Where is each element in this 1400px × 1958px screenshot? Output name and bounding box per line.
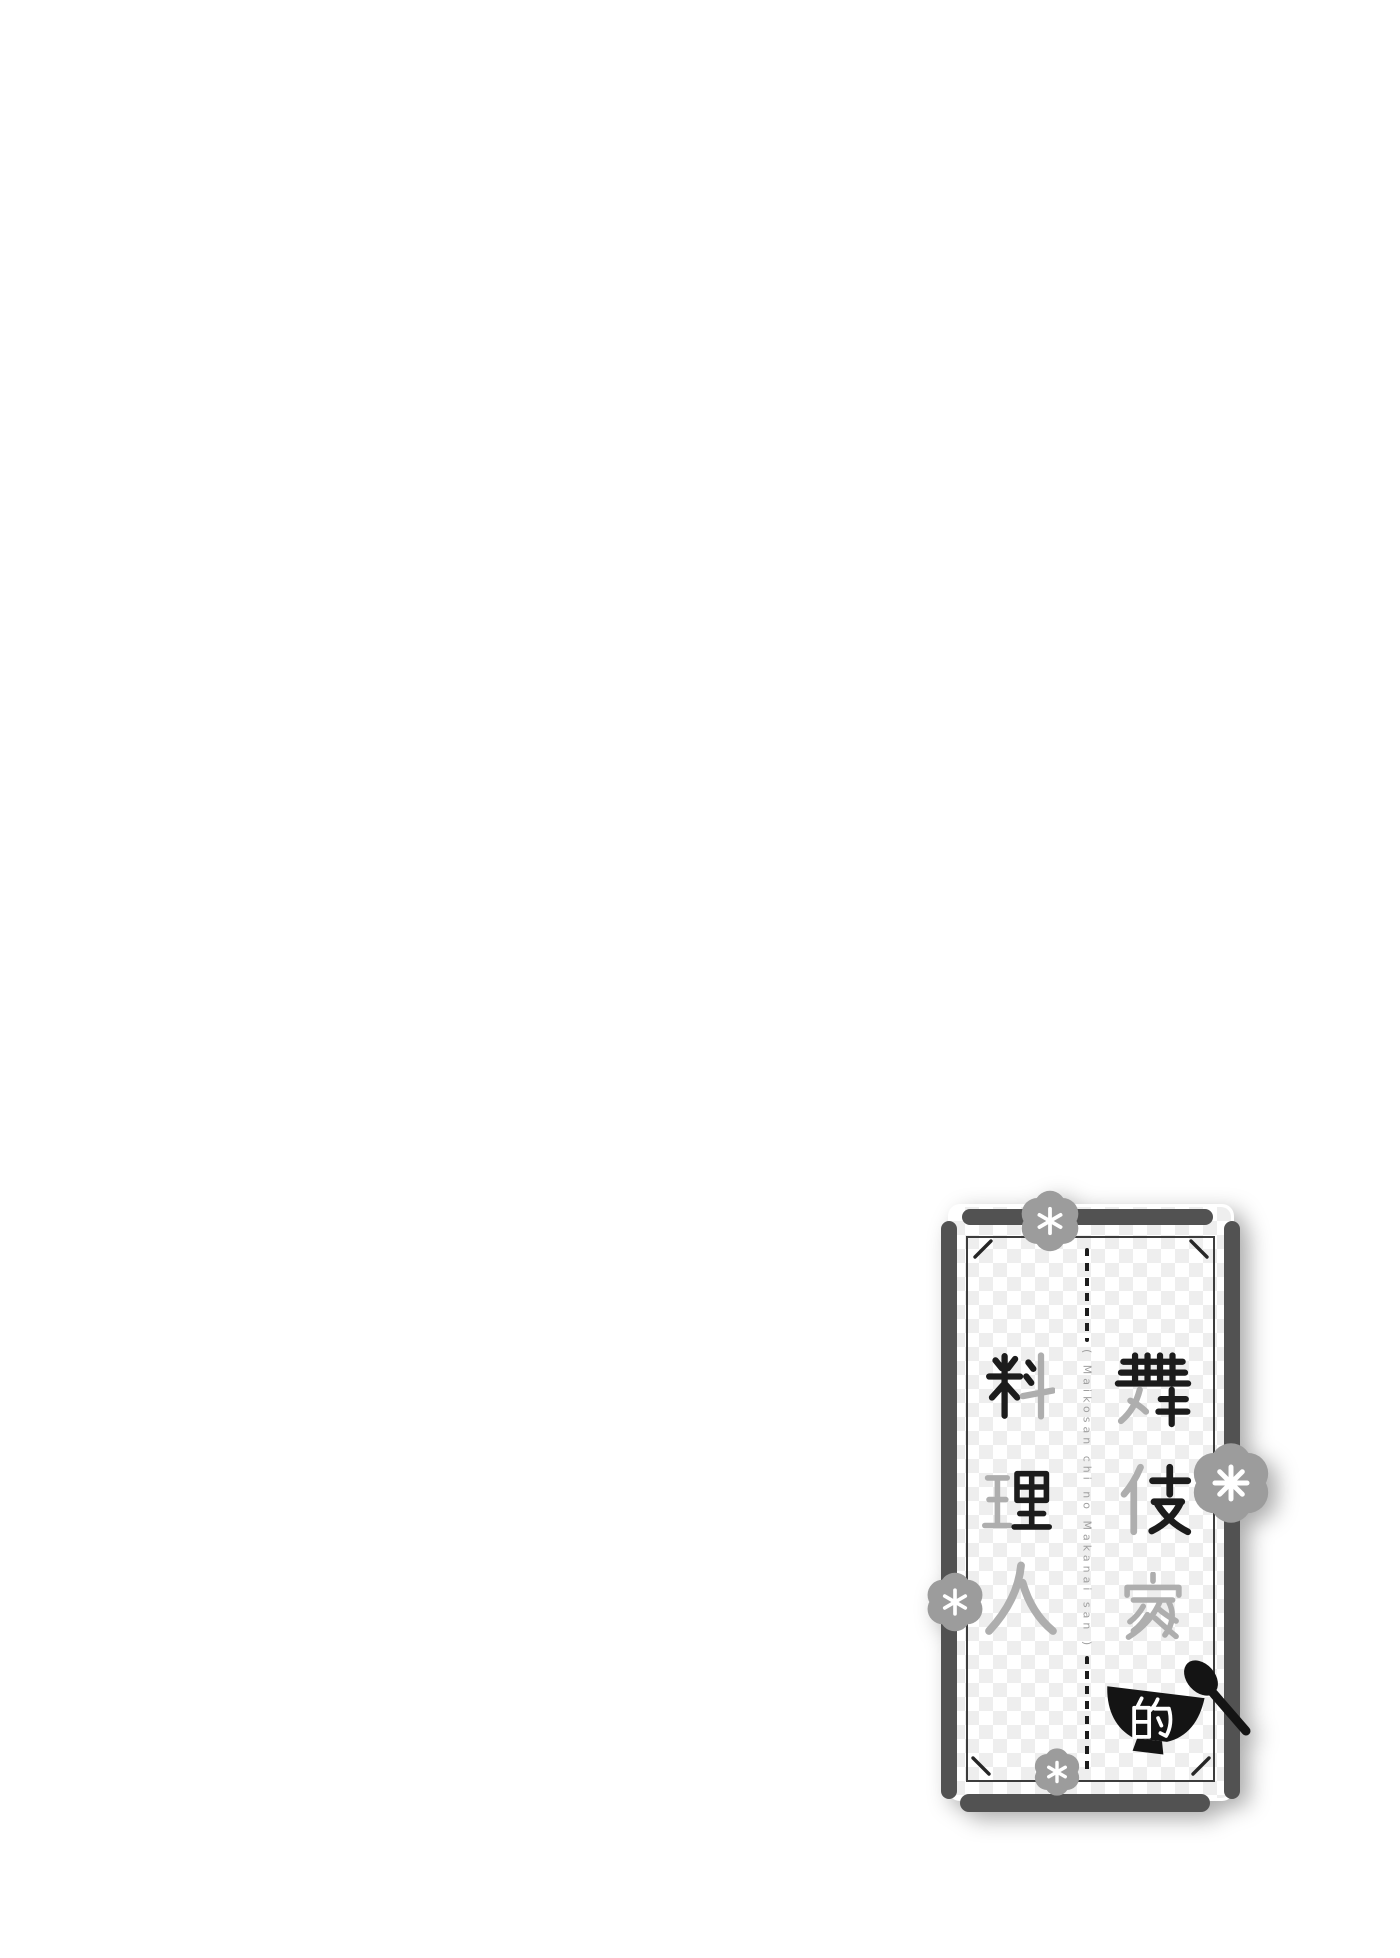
kanji-ryou-glyph <box>985 1352 1055 1422</box>
corner-tick-top-left <box>972 1238 994 1260</box>
asterisk-icon <box>1215 1467 1247 1499</box>
kanji-ka-glyph <box>1118 1572 1188 1642</box>
plum-blossom-icon-left <box>924 1571 986 1633</box>
frame-bar-top <box>962 1209 1213 1225</box>
dashed-line-top <box>1085 1248 1088 1342</box>
kanji-jin-glyph <box>982 1560 1060 1638</box>
frame-bar-bottom <box>960 1794 1210 1812</box>
frame-bar-left <box>941 1221 957 1799</box>
corner-tick-bottom-left <box>970 1755 992 1777</box>
plum-blossom-icon-right <box>1189 1441 1273 1525</box>
kanji-gi-glyph <box>1118 1462 1193 1537</box>
corner-tick-top-right <box>1188 1238 1210 1260</box>
center-divider: ( Maikosan chi no Makanai san ) <box>1070 1248 1104 1772</box>
series-logo: ( Maikosan chi no Makanai san ) <box>920 1180 1300 1840</box>
rice-bowl-icon <box>1100 1652 1260 1767</box>
plum-blossom-icon-bottom <box>1032 1747 1082 1797</box>
bowl-shape <box>1100 1686 1205 1758</box>
romaji-subtitle: ( Maikosan chi no Makanai san ) <box>1081 1349 1094 1649</box>
plum-blossom-icon-top <box>1018 1189 1082 1253</box>
dashed-line-bottom <box>1085 1656 1088 1774</box>
kanji-ri-glyph <box>982 1466 1052 1536</box>
kanji-mai-glyph <box>1114 1350 1192 1428</box>
title-page: 舞伎家的料理人 ( Maikosan chi no Makanai san ) <box>0 0 1400 1958</box>
